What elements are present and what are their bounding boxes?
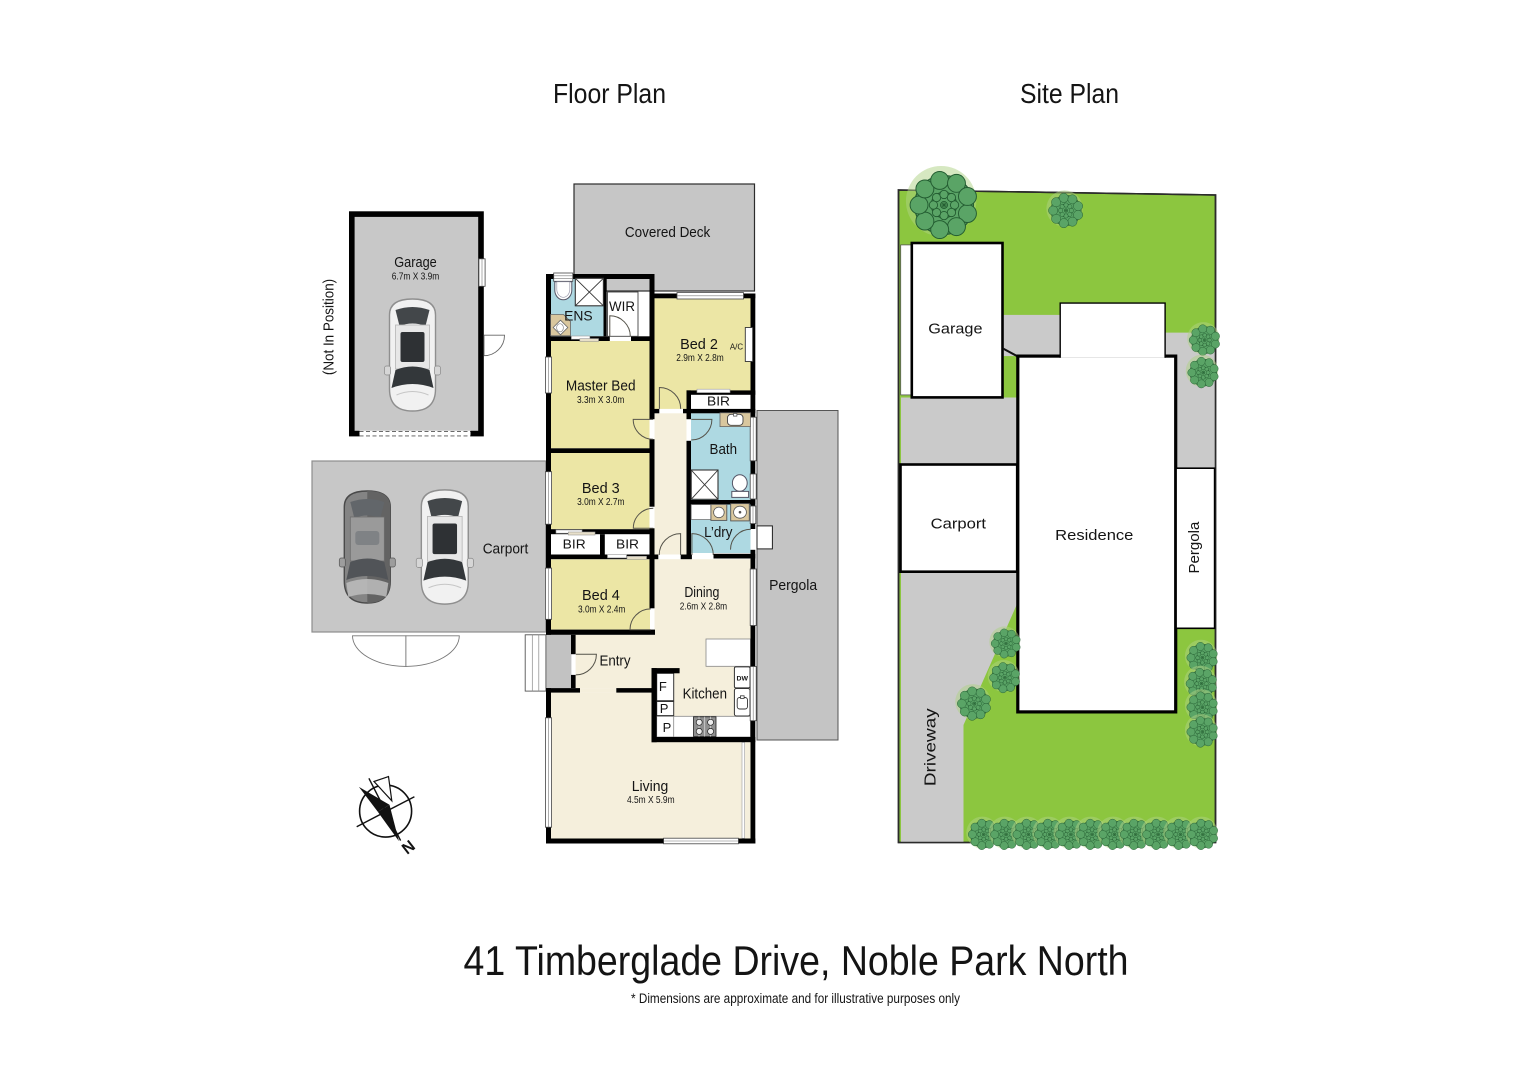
- svg-text:Master Bed: Master Bed: [566, 378, 636, 395]
- svg-text:Garage: Garage: [394, 254, 437, 271]
- svg-text:P: P: [663, 720, 672, 735]
- svg-text:A/C: A/C: [730, 343, 744, 352]
- svg-text:Site Plan: Site Plan: [1020, 78, 1119, 109]
- svg-text:Pergola: Pergola: [1186, 521, 1203, 573]
- svg-text:DW: DW: [737, 676, 749, 683]
- svg-text:L’dry: L’dry: [704, 524, 733, 541]
- svg-text:BIR: BIR: [707, 393, 730, 408]
- svg-text:41 Timberglade Drive, Noble Pa: 41 Timberglade Drive, Noble Park North: [464, 937, 1129, 984]
- svg-text:Living: Living: [632, 778, 669, 795]
- svg-text:3.0m X 2.4m: 3.0m X 2.4m: [578, 603, 626, 615]
- svg-text:WIR: WIR: [609, 298, 635, 314]
- svg-text:Residence: Residence: [1055, 527, 1133, 544]
- svg-text:Bed 3: Bed 3: [582, 480, 620, 497]
- svg-text:ENS: ENS: [564, 308, 593, 324]
- svg-text:Bed 4: Bed 4: [582, 587, 620, 604]
- svg-text:3.0m X 2.7m: 3.0m X 2.7m: [577, 496, 625, 508]
- svg-text:2.6m X 2.8m: 2.6m X 2.8m: [680, 601, 728, 613]
- svg-text:Carport: Carport: [931, 515, 987, 532]
- svg-text:4.5m X 5.9m: 4.5m X 5.9m: [627, 794, 675, 806]
- svg-text:Driveway: Driveway: [923, 708, 940, 786]
- svg-text:(Not In Position): (Not In Position): [321, 279, 338, 375]
- svg-text:BIR: BIR: [616, 537, 639, 552]
- svg-text:6.7m X 3.9m: 6.7m X 3.9m: [392, 271, 440, 283]
- svg-text:F: F: [659, 679, 667, 694]
- svg-text:Carport: Carport: [483, 540, 529, 557]
- svg-text:Garage: Garage: [928, 321, 982, 338]
- svg-text:* Dimensions are approximate a: * Dimensions are approximate and for ill…: [631, 991, 960, 1006]
- svg-text:3.3m X 3.0m: 3.3m X 3.0m: [577, 394, 625, 406]
- svg-text:Pergola: Pergola: [769, 577, 818, 594]
- svg-text:N: N: [399, 838, 419, 859]
- svg-text:Bath: Bath: [710, 441, 738, 458]
- svg-text:2.9m X 2.8m: 2.9m X 2.8m: [676, 352, 724, 364]
- svg-text:Dining: Dining: [684, 584, 719, 601]
- svg-text:Kitchen: Kitchen: [683, 686, 727, 703]
- svg-text:P: P: [660, 701, 669, 716]
- svg-text:Floor Plan: Floor Plan: [553, 78, 666, 109]
- svg-text:BIR: BIR: [563, 537, 586, 552]
- svg-text:Bed 2: Bed 2: [680, 336, 718, 353]
- svg-text:Covered Deck: Covered Deck: [625, 224, 711, 241]
- svg-text:Entry: Entry: [599, 652, 631, 669]
